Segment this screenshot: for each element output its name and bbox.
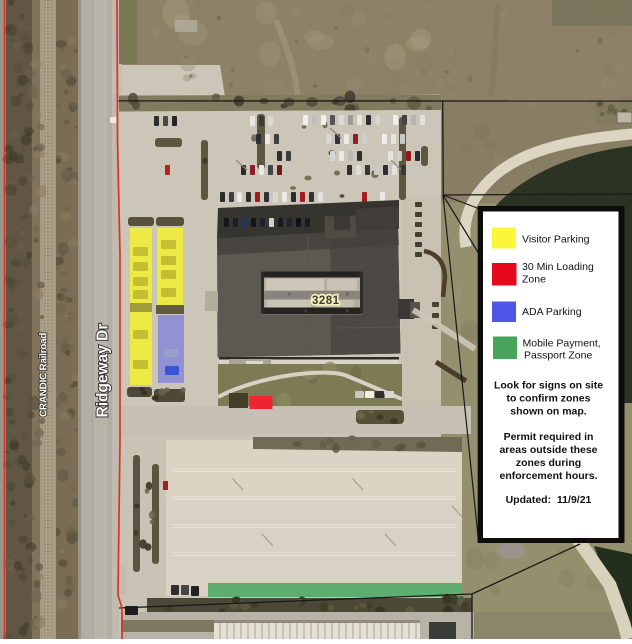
svg-text:✕: ✕ [345, 292, 350, 298]
svg-text:✕: ✕ [303, 309, 308, 315]
svg-text:Permit required in: Permit required in [504, 431, 594, 443]
svg-text:zones during: zones during [516, 457, 581, 469]
svg-text:Look for signs on site: Look for signs on site [494, 380, 603, 392]
svg-text:✕: ✕ [345, 309, 350, 315]
svg-text:Zone: Zone [522, 273, 546, 285]
svg-text:✕: ✕ [287, 292, 292, 298]
svg-text:to confirm zones: to confirm zones [506, 393, 590, 405]
svg-text:Updated: 11/9/21: Updated: 11/9/21 [506, 494, 592, 506]
svg-text:shown on map.: shown on map. [510, 406, 587, 418]
svg-text:30 Min Loading: 30 Min Loading [522, 261, 594, 273]
svg-text:3281: 3281 [312, 295, 340, 307]
svg-text:enforcement hours.: enforcement hours. [499, 470, 597, 482]
svg-text:areas outside these: areas outside these [499, 444, 597, 456]
svg-text:Ridgeway Dr: Ridgeway Dr [95, 324, 112, 418]
svg-text:CRANDIC Railroad: CRANDIC Railroad [39, 333, 50, 417]
svg-text:Visitor Parking: Visitor Parking [522, 234, 590, 246]
svg-text:ADA Parking: ADA Parking [522, 306, 582, 318]
svg-text:Passport Zone: Passport Zone [524, 349, 592, 361]
svg-text:Mobile Payment,: Mobile Payment, [523, 337, 601, 349]
